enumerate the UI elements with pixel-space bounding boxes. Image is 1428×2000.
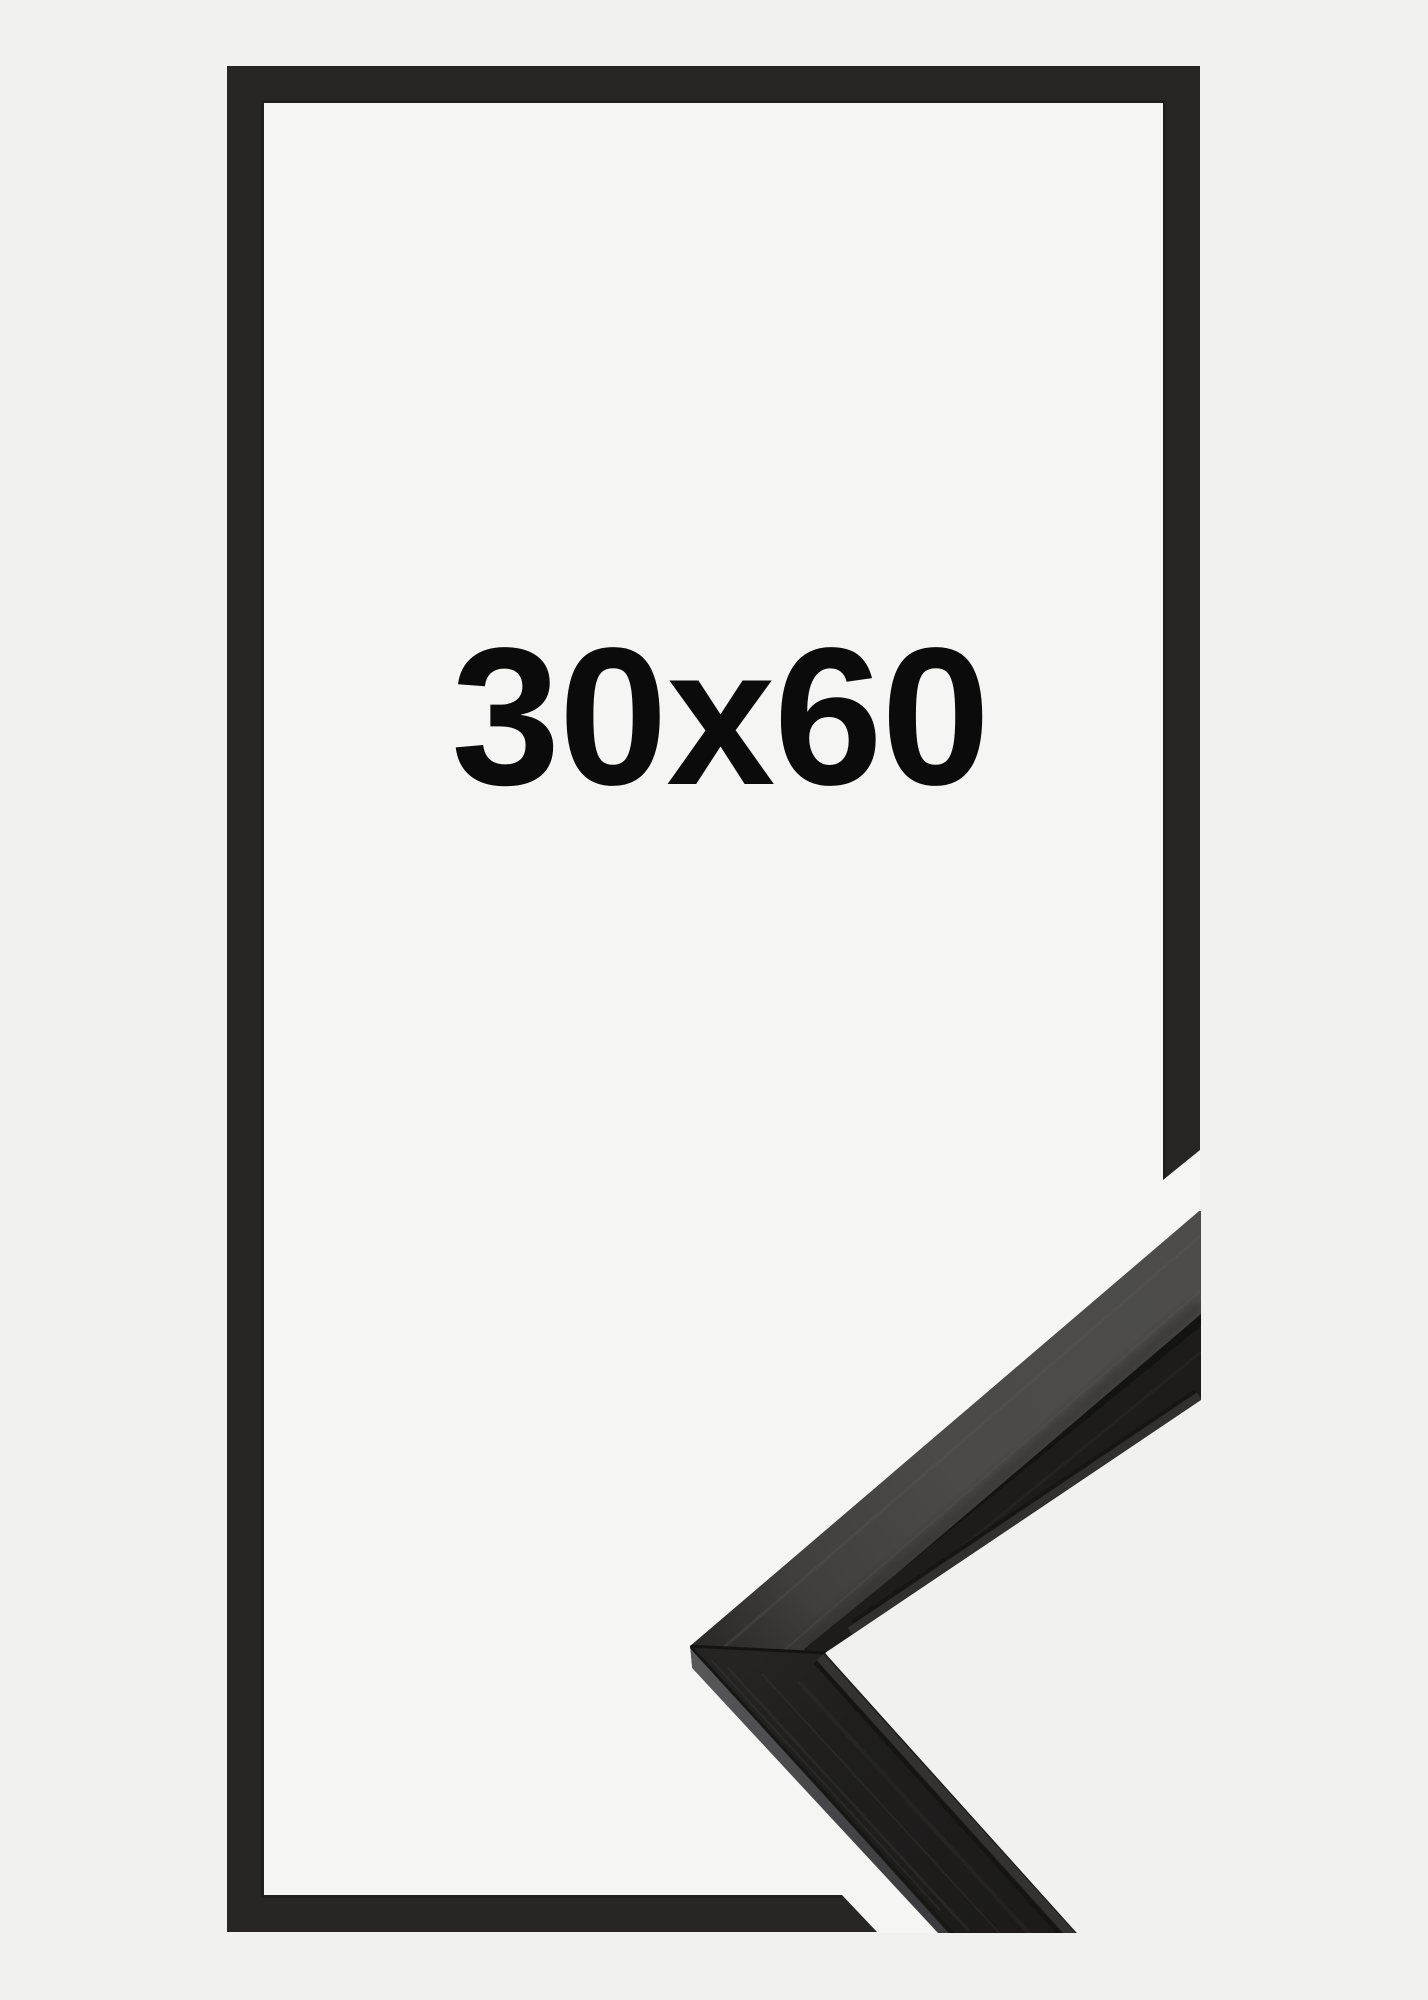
svg-text:30x60: 30x60 [451,607,989,826]
